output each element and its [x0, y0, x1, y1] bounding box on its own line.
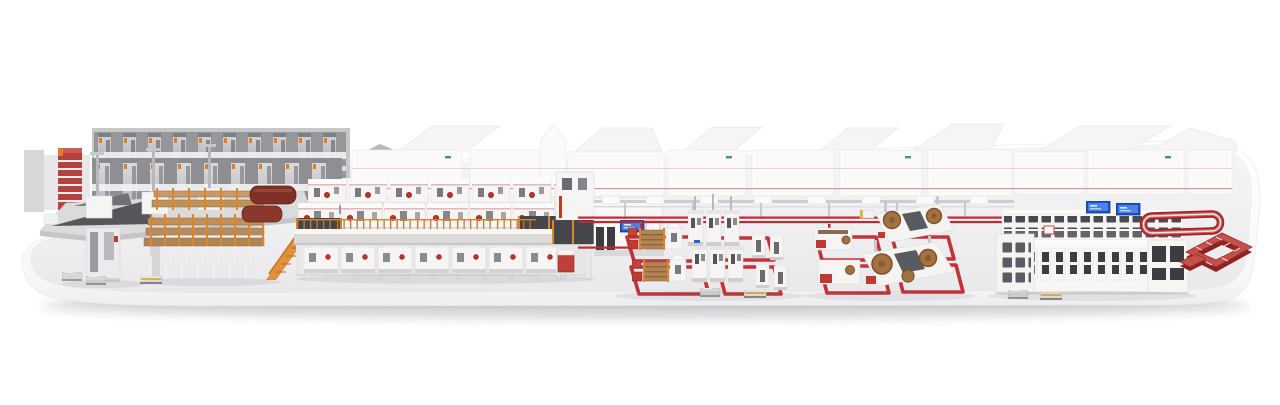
- paper-roll-highlight: [254, 189, 292, 192]
- stripe: [58, 176, 82, 178]
- board-stack-upper: [154, 191, 264, 197]
- cabinet-window: [1170, 268, 1184, 280]
- shadow: [987, 291, 1197, 301]
- floor-module: [452, 247, 486, 273]
- red-floor-unit: [558, 254, 574, 272]
- tower-mast: [730, 196, 732, 212]
- carrier: [916, 196, 934, 204]
- corrugator-module: [431, 179, 469, 205]
- mast: [96, 154, 99, 198]
- roll-core: [889, 217, 895, 223]
- green-logo: [905, 156, 911, 158]
- tower-mast: [712, 194, 714, 212]
- corrugator-module: [308, 179, 346, 205]
- shadow: [61, 280, 145, 288]
- tower-machine: [692, 246, 707, 282]
- blue-indicator: [694, 240, 700, 243]
- corrugator-upper-row-back: [308, 179, 592, 205]
- red-detail: [114, 236, 118, 242]
- cabinet-window: [1152, 268, 1166, 280]
- shadow: [138, 278, 282, 286]
- stripe: [58, 192, 82, 194]
- floor-level-modules: [304, 247, 560, 273]
- door-panel: [1082, 248, 1093, 280]
- cabinet-windows: [999, 240, 1031, 286]
- control-screen: [1116, 203, 1140, 215]
- red-detail: [878, 232, 885, 238]
- branch-line: [578, 247, 634, 249]
- door-panel: [1068, 248, 1079, 280]
- small-roll: [846, 266, 855, 275]
- green-logo: [726, 156, 732, 158]
- floor-module: [304, 247, 338, 273]
- roofline: [398, 126, 500, 151]
- tower-machine: [724, 210, 739, 246]
- shadow: [615, 291, 805, 301]
- aux-machine-top: [818, 230, 848, 234]
- support-pillar: [300, 245, 305, 279]
- support-pillar: [586, 246, 591, 280]
- tower-machine: [728, 246, 743, 282]
- leg: [164, 256, 168, 280]
- tower-mast: [694, 196, 696, 212]
- leg: [180, 256, 184, 280]
- stripe: [58, 168, 82, 170]
- tower-window: [578, 178, 587, 190]
- green-logo: [1165, 156, 1171, 158]
- stand: [752, 234, 765, 258]
- tower-machine: [706, 210, 721, 246]
- roofline: [575, 128, 662, 151]
- red-detail: [816, 240, 826, 248]
- panel-frame: [552, 220, 554, 244]
- board-stack: [144, 238, 264, 246]
- green-logo: [445, 156, 451, 158]
- stand: [756, 264, 769, 288]
- rack-shelf: [94, 152, 346, 159]
- floor-module: [526, 247, 560, 273]
- roll-core: [925, 255, 931, 261]
- door-panel: [1124, 248, 1135, 280]
- leg: [196, 256, 200, 280]
- mast-crossarm: [146, 148, 160, 151]
- roofline: [1150, 128, 1236, 151]
- mast: [208, 146, 211, 190]
- mast-crossarm: [90, 152, 104, 155]
- corrugator-module: [513, 179, 551, 205]
- door-panel: [1138, 248, 1149, 280]
- roll-core: [931, 213, 936, 218]
- tower-window: [562, 178, 572, 190]
- carrier: [754, 196, 772, 204]
- roofline: [684, 127, 762, 151]
- wall-base-conveyor: [594, 250, 664, 256]
- carrier: [808, 196, 826, 204]
- stand: [770, 236, 783, 260]
- paper-roll: [250, 186, 296, 204]
- conveyor-rail-lower: [594, 206, 1014, 208]
- corrugator-line: [294, 179, 592, 279]
- red-detail: [820, 274, 832, 283]
- red-column: [559, 196, 562, 218]
- stripe: [58, 184, 82, 186]
- red-detail: [866, 276, 876, 284]
- mast-crossarm: [202, 144, 216, 147]
- factory-render-svg: [0, 0, 1280, 405]
- splicer-unit: [86, 196, 112, 218]
- shuttle-marker: [860, 210, 863, 218]
- deck-edge: [294, 243, 592, 245]
- stripe: [58, 200, 82, 202]
- cabinet-window: [1170, 246, 1184, 262]
- building: [1188, 150, 1232, 194]
- small-roll: [842, 236, 850, 244]
- mast: [874, 240, 877, 252]
- floor-module: [489, 247, 523, 273]
- tower-slot: [90, 232, 98, 272]
- carrier: [862, 196, 880, 204]
- cabinet-window: [1152, 246, 1166, 262]
- control-screen: [1086, 201, 1110, 213]
- door-panel: [1096, 248, 1107, 280]
- factory-render-image: Isometric 3D rendering of a complete cor…: [0, 0, 1280, 405]
- carrier: [646, 196, 664, 204]
- tower-machine: [710, 246, 725, 282]
- deck-floor: [294, 229, 592, 234]
- infeed-box: [44, 214, 58, 224]
- shadow: [805, 291, 975, 301]
- red-stripe-tower: [58, 148, 82, 210]
- deck-face: [294, 234, 592, 243]
- panel-frame: [572, 220, 574, 244]
- red-white-marker: [1044, 226, 1054, 234]
- corrugator-module: [427, 203, 468, 230]
- door-panel: [1040, 248, 1051, 280]
- carrier: [970, 196, 988, 204]
- shadow: [295, 274, 595, 284]
- roofline: [820, 128, 898, 151]
- leg: [244, 256, 248, 280]
- red-pinstripe: [352, 168, 1232, 169]
- red-unit-cap: [558, 250, 574, 255]
- building: [1014, 152, 1084, 194]
- paper-roll: [902, 270, 914, 282]
- paper-roll: [242, 206, 282, 222]
- corrugator-module: [390, 179, 428, 205]
- mast: [152, 150, 155, 194]
- corrugator-module: [341, 203, 382, 230]
- door-panel: [1110, 248, 1121, 280]
- orange-corner: [58, 148, 63, 156]
- corrugator-module: [349, 179, 387, 205]
- stand: [774, 266, 787, 290]
- floor-module: [415, 247, 449, 273]
- roofline: [912, 124, 1004, 151]
- left-wall: [24, 150, 44, 212]
- door-panel: [1054, 248, 1065, 280]
- carrier: [700, 196, 718, 204]
- floor-module: [378, 247, 412, 273]
- board-stack: [146, 228, 264, 235]
- carrier: [602, 196, 620, 204]
- corrugator-module: [472, 179, 510, 205]
- mast: [884, 200, 887, 212]
- mezzanine-deck: [294, 216, 592, 245]
- stripe: [58, 160, 82, 162]
- leg: [228, 256, 232, 280]
- tower-slot: [104, 232, 114, 260]
- floor-module: [341, 247, 375, 273]
- leg: [212, 256, 216, 280]
- roll-core: [879, 261, 886, 268]
